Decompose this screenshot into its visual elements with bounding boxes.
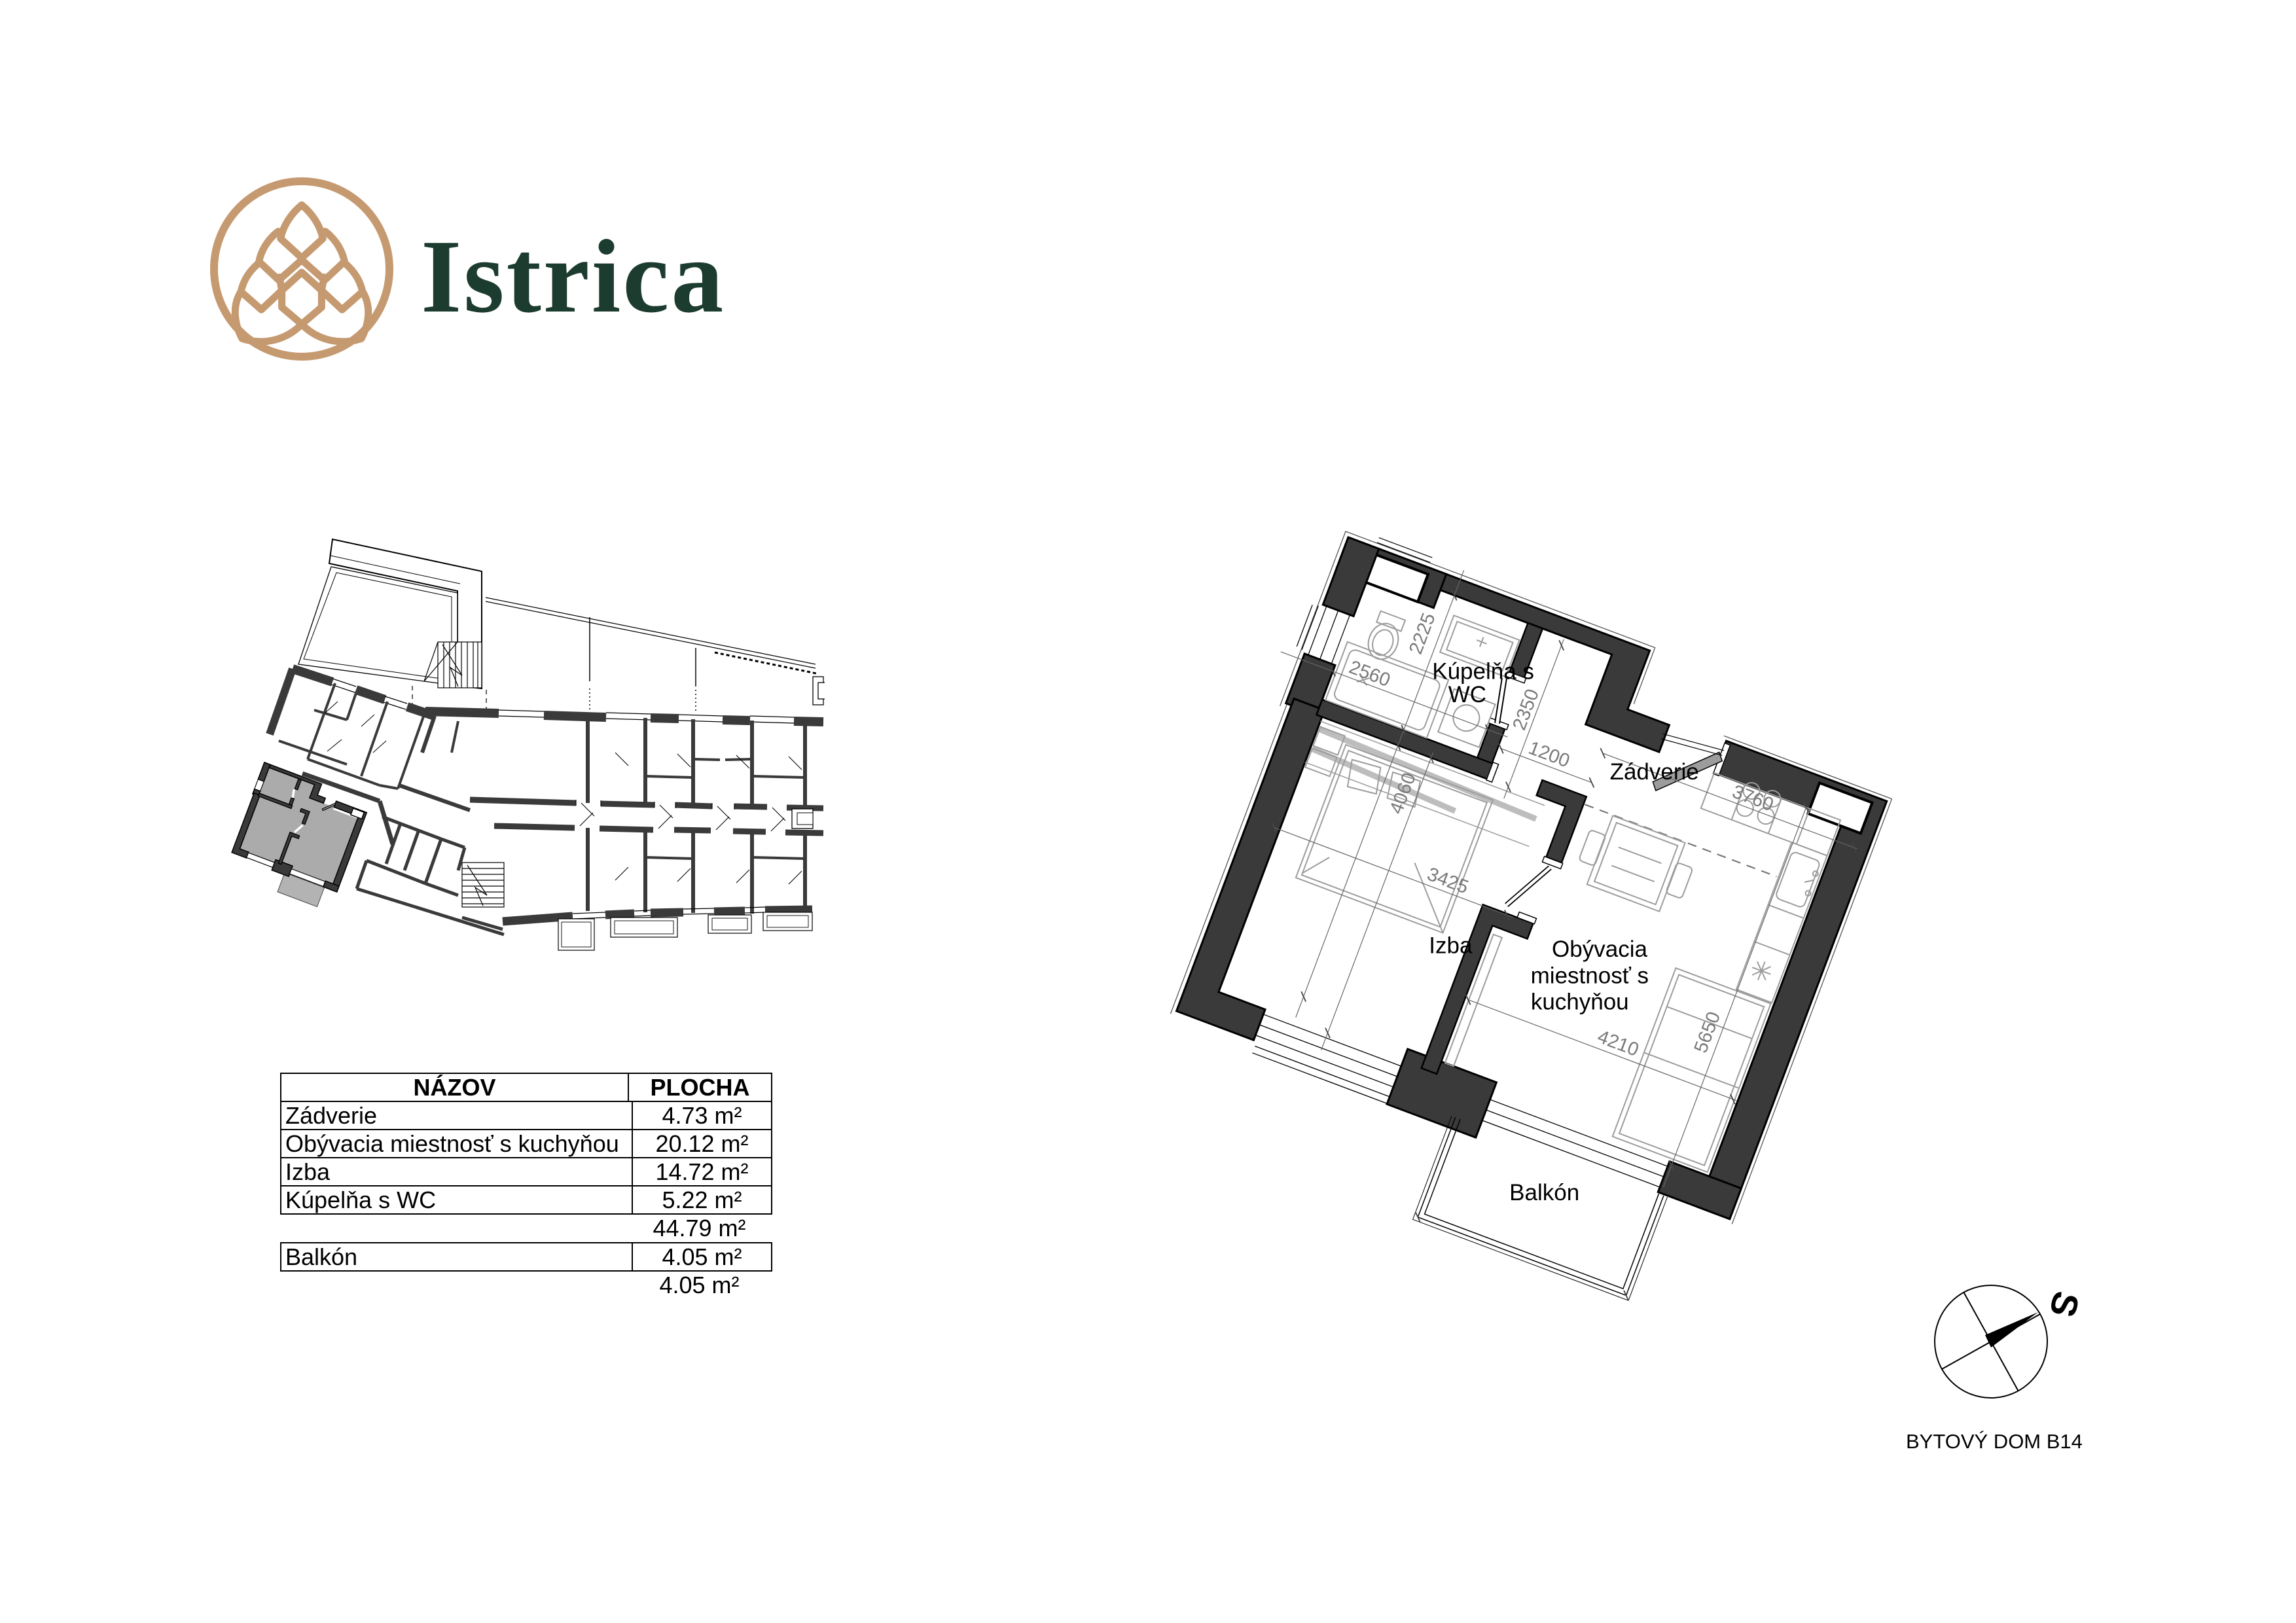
svg-text:5650: 5650 (1691, 1009, 1725, 1056)
svg-text:WC: WC (1448, 682, 1486, 707)
svg-text:S: S (2041, 1287, 2088, 1321)
svg-text:Balkón: Balkón (1509, 1180, 1579, 1205)
svg-text:kuchyňou: kuchyňou (1531, 990, 1629, 1015)
svg-text:Izba: Izba (1429, 933, 1473, 959)
svg-text:Obývacia: Obývacia (1552, 936, 1647, 962)
svg-text:2350: 2350 (1509, 687, 1543, 734)
svg-text:4210: 4210 (1594, 1026, 1641, 1061)
svg-text:Zádverie: Zádverie (1610, 759, 1699, 785)
svg-text:miestnosť s: miestnosť s (1531, 963, 1649, 988)
svg-text:Kúpelňa s: Kúpelňa s (1432, 658, 1534, 684)
svg-text:2225: 2225 (1405, 611, 1440, 658)
